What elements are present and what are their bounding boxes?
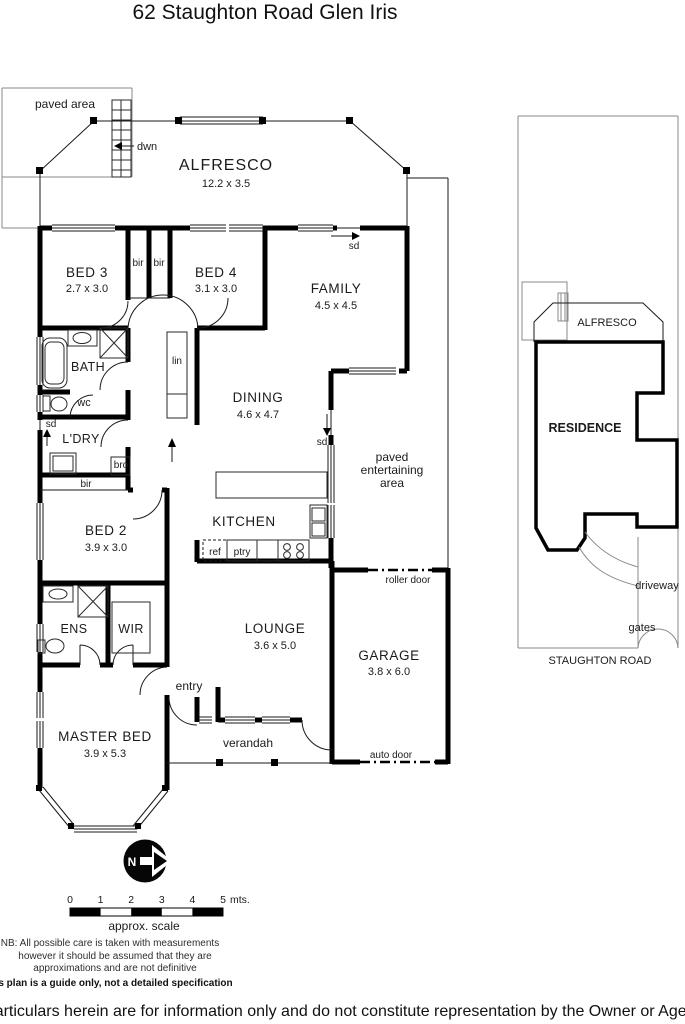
- floorplan-drawing: 62 Staughton Road Glen Iris paved area d…: [0, 0, 685, 1024]
- garage-dims: 3.8 x 6.0: [368, 666, 410, 678]
- family-label: FAMILY: [311, 281, 362, 296]
- verandah-post: [216, 759, 223, 766]
- north-arrow-icon: N: [124, 840, 173, 883]
- dining-dims: 4.6 x 4.7: [237, 409, 279, 421]
- ref-label: ref: [209, 547, 221, 558]
- linen-closet: [167, 332, 187, 418]
- room-labels: BED 3 2.7 x 3.0 BED 4 3.1 x 3.0 FAMILY 4…: [58, 265, 420, 760]
- verandah-post: [271, 759, 278, 766]
- alfresco: ALFRESCO 12.2 x 3.5: [36, 117, 410, 226]
- garage-label: GARAGE: [358, 648, 419, 663]
- page-title: 62 Staughton Road Glen Iris: [132, 1, 397, 24]
- scale-unit: mts.: [230, 894, 250, 906]
- hall-arrow-icon: [168, 438, 176, 462]
- bir-label: bir: [153, 258, 165, 269]
- bir-label: bir: [132, 258, 144, 269]
- dwn-label: dwn: [137, 141, 157, 153]
- sd-arrow-laundry: [43, 429, 51, 446]
- notes: NB: All possible care is taken with meas…: [0, 938, 233, 989]
- site-driveway-label: driveway: [635, 580, 679, 592]
- ens-label: ENS: [61, 622, 88, 636]
- small-labels: bir bir lin bro bir ref ptry sd sd sd en…: [46, 241, 431, 761]
- floorplan-page: 62 Staughton Road Glen Iris paved area d…: [0, 0, 685, 1024]
- site-gates-label: gates: [629, 622, 656, 634]
- bath-fixtures: [42, 328, 128, 388]
- sd-arrow-dining: [323, 414, 331, 436]
- disclaimer-bold: This plan is a guide only, not a detaile…: [0, 978, 233, 989]
- wc-label: wc: [76, 397, 91, 409]
- scale-tick: 2: [128, 894, 134, 906]
- bro-label: bro: [114, 460, 129, 471]
- site-residence-label: RESIDENCE: [549, 421, 622, 435]
- entry-label: entry: [176, 679, 203, 693]
- paved-area-label: paved area: [35, 97, 95, 111]
- bed4-dims: 3.1 x 3.0: [195, 283, 237, 295]
- auto-door-label: auto door: [370, 750, 413, 761]
- side-strip-boundary: [407, 178, 448, 568]
- family-dims: 4.5 x 4.5: [315, 300, 357, 312]
- residence-outline: [536, 342, 677, 550]
- exterior-interior-walls: [40, 226, 448, 790]
- master-dims: 3.9 x 5.3: [84, 748, 126, 760]
- scale-bar: 0 1 2 3 4 5 mts. approx. scale: [67, 894, 250, 933]
- kitchen-label: KITCHEN: [212, 514, 275, 529]
- bir-label: bir: [80, 479, 92, 490]
- ensuite-fixtures: [38, 586, 108, 653]
- master-label: MASTER BED: [58, 729, 152, 744]
- dining-label: DINING: [233, 390, 284, 405]
- bed2-dims: 3.9 x 3.0: [85, 542, 127, 554]
- bed3-dims: 2.7 x 3.0: [66, 283, 108, 295]
- bed4-label: BED 4: [195, 265, 237, 280]
- nb-line-1: NB: All possible care is taken with meas…: [1, 938, 219, 949]
- sd-arrow-family: [331, 232, 360, 240]
- ldry-label: L'DRY: [62, 432, 100, 446]
- wir-label: WIR: [118, 622, 144, 636]
- scale-caption: approx. scale: [108, 919, 180, 933]
- paved-area: paved area dwn: [2, 88, 157, 228]
- site-road-label: STAUGHTON ROAD: [549, 655, 652, 667]
- ptry-label: ptry: [234, 547, 251, 558]
- nb-line-3: approximations and are not definitive: [33, 963, 197, 974]
- paved-entertaining-label: paved: [376, 450, 409, 464]
- sd-label-dining: sd: [317, 437, 328, 448]
- alfresco-dims: 12.2 x 3.5: [202, 178, 250, 190]
- lin-label: lin: [172, 356, 182, 367]
- bed3-label: BED 3: [66, 265, 108, 280]
- scale-tick: 4: [189, 894, 195, 906]
- site-alfresco-label: ALFRESCO: [577, 317, 637, 329]
- alfresco-label: ALFRESCO: [179, 157, 273, 174]
- scale-tick: 5: [220, 894, 226, 906]
- north-label: N: [128, 855, 137, 869]
- site-plan: ALFRESCO RESIDENCE driveway gates STAUGH…: [518, 116, 679, 667]
- bath-label: BATH: [71, 360, 105, 374]
- wc-fixtures: [43, 396, 67, 411]
- scale-tick: 0: [67, 894, 73, 906]
- bed2-label: BED 2: [85, 523, 127, 538]
- paved-entertaining-label: entertaining: [361, 463, 424, 477]
- sd-label-laundry: sd: [46, 419, 57, 430]
- nb-line-2: however it should be assumed that they a…: [18, 951, 212, 962]
- steps-down: [112, 100, 131, 177]
- roller-door-label: roller door: [385, 575, 431, 586]
- footer-disclaimer: Particulars herein are for information o…: [0, 1003, 685, 1020]
- sd-label-family: sd: [349, 241, 360, 252]
- scale-tick: 1: [98, 894, 104, 906]
- verandah-label: verandah: [223, 736, 273, 750]
- lounge-dims: 3.6 x 5.0: [254, 640, 296, 652]
- lounge-label: LOUNGE: [245, 621, 306, 636]
- scale-tick: 3: [159, 894, 165, 906]
- paved-entertaining-label: area: [380, 476, 404, 490]
